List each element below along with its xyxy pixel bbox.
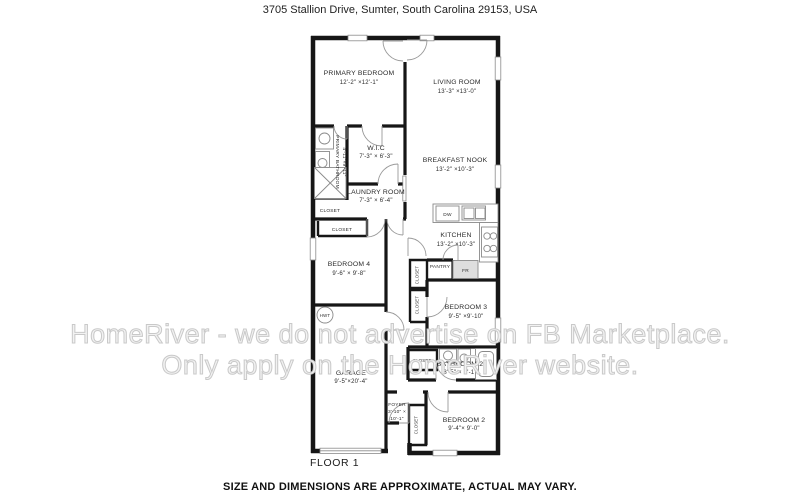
closet1-label: CLOSET <box>320 208 340 214</box>
closet-bedroom2-label: CLOSET <box>414 416 419 435</box>
kitchen-label: KITCHEN <box>440 232 471 239</box>
stove <box>482 227 498 257</box>
foyer-label: FOYER <box>388 402 406 408</box>
wic-dims: 7'-3" × 6'-3" <box>359 154 392 160</box>
bathroom2-dims: 8'-5" × 5'-1" <box>443 370 476 376</box>
living-room-dims: 13'-3" ×13'-0" <box>438 89 477 95</box>
foyer-dims2: 10'-1" <box>390 416 404 422</box>
bedroom4-label: BEDROOM 4 <box>328 261 371 268</box>
closet-hall-label: CLOSET <box>415 266 420 285</box>
pantry-label: PANTRY <box>430 264 451 270</box>
foyer-dims1: 3'-10" × <box>388 409 406 415</box>
floor-label: FLOOR 1 <box>310 457 359 469</box>
fridge-label: FR <box>462 268 469 274</box>
primary-bedroom-label: PRIMARY BEDROOM <box>324 70 395 77</box>
living-room-label: LIVING ROOM <box>433 79 481 86</box>
kitchen-dims: 13'-2" ×10'-3" <box>437 242 476 248</box>
bedroom2-label: BEDROOM 2 <box>443 417 486 424</box>
laundry-room-dims: 7'-3" × 6'-4" <box>359 198 392 204</box>
breakfast-nook-label: BREAKFAST NOOK <box>423 157 488 164</box>
hwt-label: HWT <box>320 313 331 318</box>
dishwasher-label: DW <box>443 212 452 218</box>
primary-bathroom-dims: 4'-11"×9'-11" <box>341 147 347 176</box>
bathroom2-label: BATHROOM 2 <box>437 361 483 368</box>
wic-label: W.I.C <box>367 145 385 152</box>
breakfast-nook-dims: 13'-2" ×10'-3" <box>436 167 475 173</box>
primary-bedroom-dims: 12'-2" ×12'-1" <box>340 80 379 86</box>
closet2-label: CLOSET <box>332 227 352 233</box>
closet-bathroom2-label: CLOSET <box>413 358 432 363</box>
disclaimer: SIZE AND DIMENSIONS ARE APPROXIMATE, ACT… <box>0 481 800 493</box>
garage-dims: 9'-5"×20'-4" <box>334 379 367 385</box>
floorplan-drawing: PRIMARY BEDROOM 12'-2" ×12'-1" LIVING RO… <box>0 0 800 499</box>
bedroom2-dims: 9'-4"× 9'-0" <box>448 426 479 432</box>
bedroom4-dims: 9'-6" × 9'-8" <box>332 271 365 277</box>
garage-label: GARAGE <box>336 370 367 377</box>
laundry-room-label: LAUNDRY ROOM <box>347 189 405 196</box>
closet-bedroom3-label: CLOSET <box>415 296 420 315</box>
closet-walls <box>318 219 437 445</box>
garage-door <box>320 448 381 453</box>
bedroom3-label: BEDROOM 3 <box>445 304 488 311</box>
primary-bathroom-label: PRIMARY BATHROOM <box>334 135 340 189</box>
bedroom3-dims: 9'-5" ×9'-10" <box>448 314 483 320</box>
floorplan-page: 3705 Stallion Drive, Sumter, South Carol… <box>0 0 800 499</box>
